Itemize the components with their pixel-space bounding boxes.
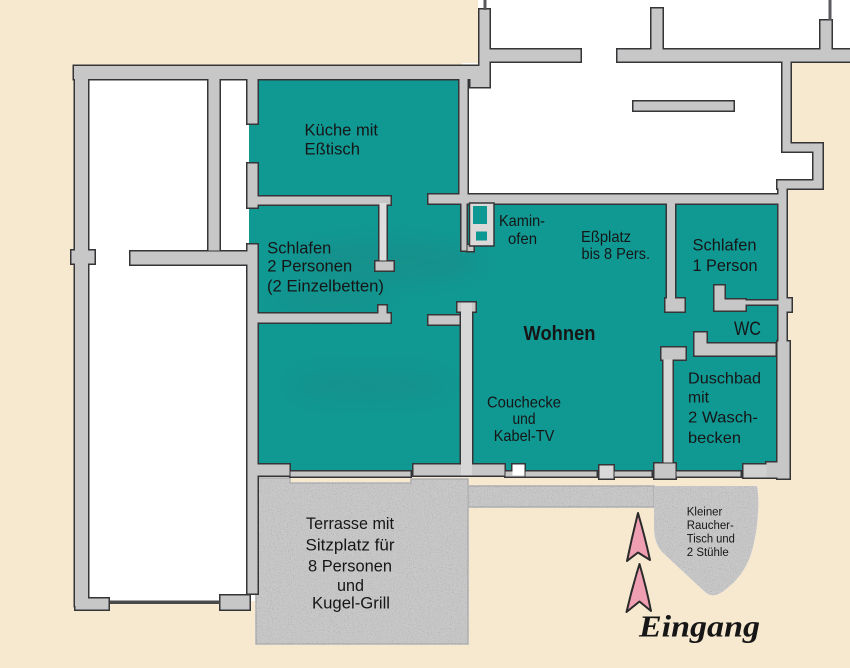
svg-text:und: und: [337, 577, 364, 595]
svg-text:Sitzplatz für: Sitzplatz für: [306, 537, 396, 555]
svg-text:Couchecke: Couchecke: [487, 395, 561, 412]
svg-text:Eßplatz: Eßplatz: [581, 229, 631, 246]
svg-text:Schlafen: Schlafen: [693, 237, 757, 255]
svg-text:2 Wasch-: 2 Wasch-: [688, 410, 758, 427]
svg-text:ofen: ofen: [508, 231, 537, 248]
svg-text:8 Personen: 8 Personen: [308, 558, 392, 576]
svg-text:Kugel-Grill: Kugel-Grill: [312, 595, 390, 613]
svg-text:Schlafen: Schlafen: [267, 240, 331, 258]
svg-text:2 Stühle: 2 Stühle: [687, 545, 729, 559]
svg-text:Wohnen: Wohnen: [524, 323, 596, 345]
svg-text:Eingang: Eingang: [638, 609, 760, 644]
svg-text:Duschbad: Duschbad: [688, 371, 761, 388]
svg-text:2 Personen: 2 Personen: [267, 258, 352, 276]
svg-text:becken: becken: [688, 430, 741, 447]
svg-text:Terrasse mit: Terrasse mit: [306, 515, 394, 533]
svg-text:Kabel-TV: Kabel-TV: [494, 428, 555, 445]
svg-text:bis 8 Pers.: bis 8 Pers.: [582, 246, 651, 263]
svg-text:1 Person: 1 Person: [693, 257, 758, 275]
svg-text:Eßtisch: Eßtisch: [305, 141, 361, 159]
svg-text:WC: WC: [734, 319, 761, 340]
svg-text:Küche mit: Küche mit: [305, 122, 379, 140]
svg-text:Tisch und: Tisch und: [687, 532, 735, 546]
svg-text:und: und: [513, 411, 536, 428]
svg-text:Kamin-: Kamin-: [499, 213, 545, 230]
svg-text:Kleiner: Kleiner: [687, 505, 723, 519]
svg-text:(2 Einzelbetten): (2 Einzelbetten): [267, 278, 384, 296]
svg-text:mit: mit: [688, 390, 710, 407]
svg-text:Raucher-: Raucher-: [687, 518, 734, 532]
